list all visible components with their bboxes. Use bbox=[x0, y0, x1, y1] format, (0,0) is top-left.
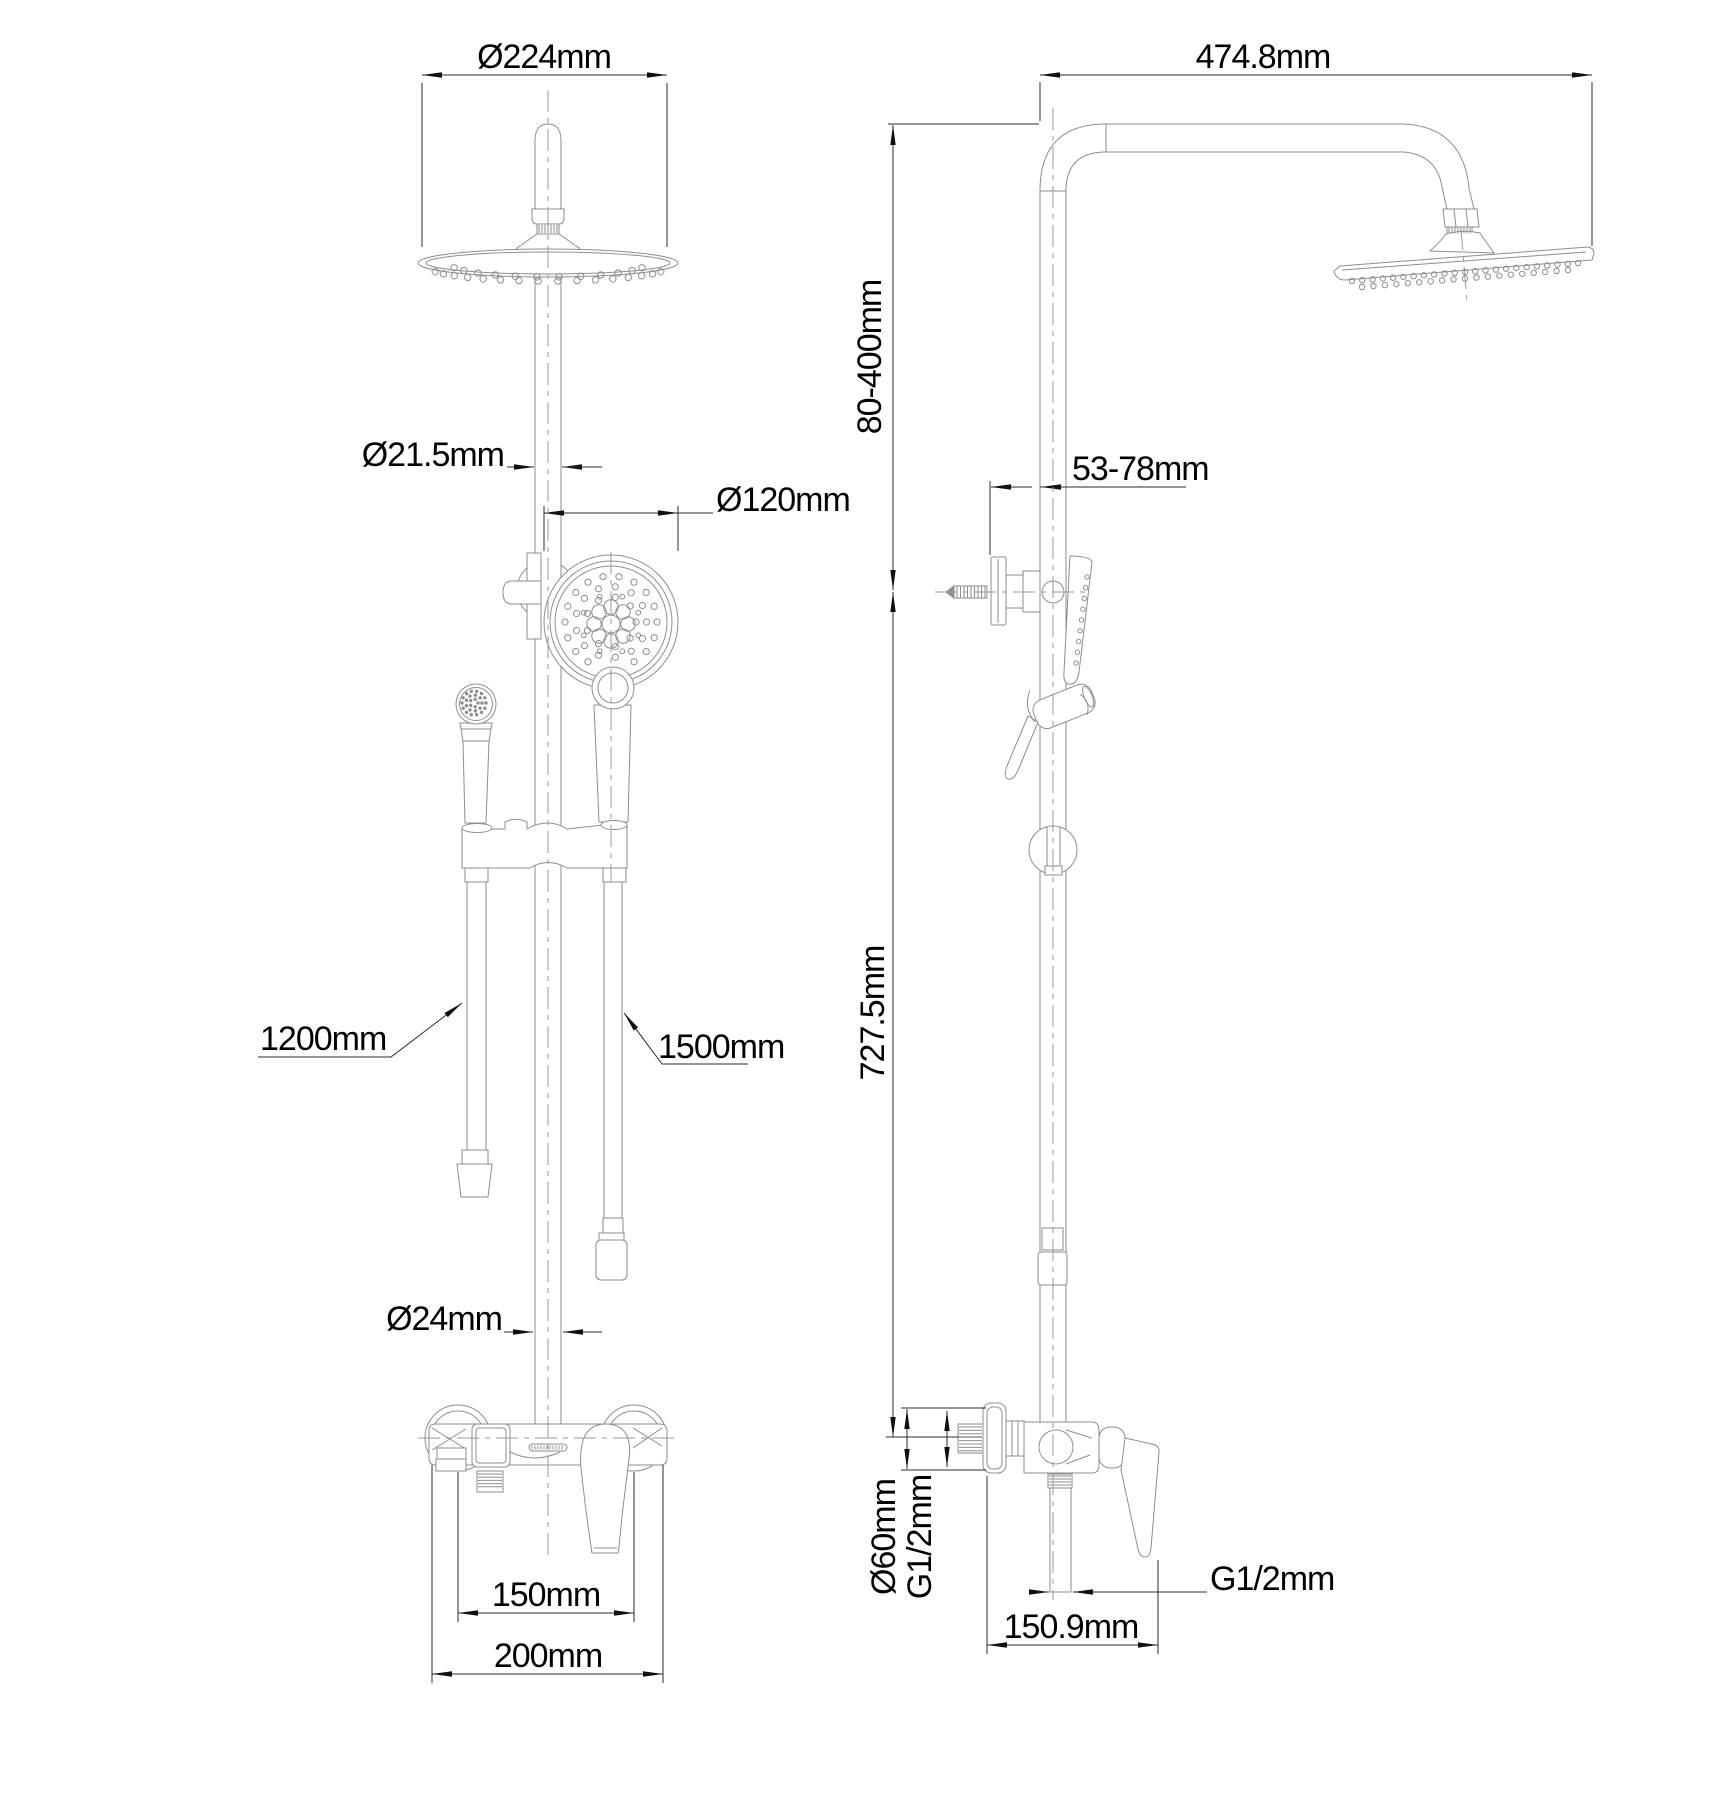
diverter-block bbox=[472, 1424, 510, 1467]
dim-riser-lower-diameter: Ø24mm bbox=[386, 1300, 502, 1338]
hand-shower-handle bbox=[594, 705, 631, 822]
dim-valve-depth: 150.9mm bbox=[1004, 1608, 1139, 1646]
dim-outlet-thread: G1/2mm bbox=[1210, 1560, 1334, 1598]
dim-left-hose-length: 1200mm bbox=[260, 1020, 386, 1058]
dim-right-hose-length: 1500mm bbox=[658, 1028, 784, 1066]
right-hose-nut bbox=[596, 1240, 627, 1280]
dim-wall-clearance: 53-78mm bbox=[1072, 450, 1209, 488]
dim-inlet-spacing: 150mm bbox=[492, 1576, 600, 1614]
dim-body-width: 200mm bbox=[494, 1637, 602, 1675]
side-escutcheon bbox=[983, 1403, 1006, 1473]
side-inlet-thread bbox=[958, 1424, 983, 1453]
front-mixer-valve bbox=[425, 1405, 667, 1553]
dim-escutcheon-diameter: Ø60mm bbox=[865, 1479, 903, 1595]
side-overhead-arm bbox=[1040, 124, 1594, 280]
left-hose-fitting bbox=[457, 1164, 492, 1197]
dimension-labels: Ø224mm Ø21.5mm Ø120mm 1200mm 1500mm Ø24m… bbox=[260, 38, 1334, 1675]
shower-system-technical-drawing: Ø224mm Ø21.5mm Ø120mm 1200mm 1500mm Ø24m… bbox=[0, 0, 1724, 1800]
side-handle-cap bbox=[1099, 1427, 1125, 1468]
dim-hand-shower-diameter: Ø120mm bbox=[716, 481, 850, 519]
front-sprayer bbox=[456, 684, 496, 823]
side-view bbox=[946, 124, 1594, 1592]
dim-arm-reach: 474.8mm bbox=[1196, 38, 1331, 76]
dim-height-adjust-range: 80-400mm bbox=[851, 280, 889, 435]
dim-inlet-thread: G1/2mm bbox=[901, 1475, 939, 1599]
mixer-handle bbox=[581, 1424, 630, 1553]
side-sprayer-handle bbox=[1005, 716, 1038, 779]
side-mixer-handle bbox=[1121, 1438, 1159, 1557]
front-bracket-knob bbox=[503, 581, 541, 604]
dim-riser-height: 727.5mm bbox=[854, 946, 892, 1081]
drawing-canvas: Ø224mm Ø21.5mm Ø120mm 1200mm 1500mm Ø24m… bbox=[0, 0, 1724, 1800]
right-hose-collar bbox=[603, 1218, 623, 1233]
side-mixer-body bbox=[1024, 1422, 1099, 1473]
dim-head-diameter: Ø224mm bbox=[477, 38, 611, 76]
left-hose-collar bbox=[462, 1150, 488, 1164]
side-mixer-valve bbox=[958, 1403, 1159, 1592]
dim-riser-upper-diameter: Ø21.5mm bbox=[362, 436, 504, 474]
sprayer-handle bbox=[463, 741, 489, 823]
front-wall-bracket bbox=[503, 553, 541, 639]
